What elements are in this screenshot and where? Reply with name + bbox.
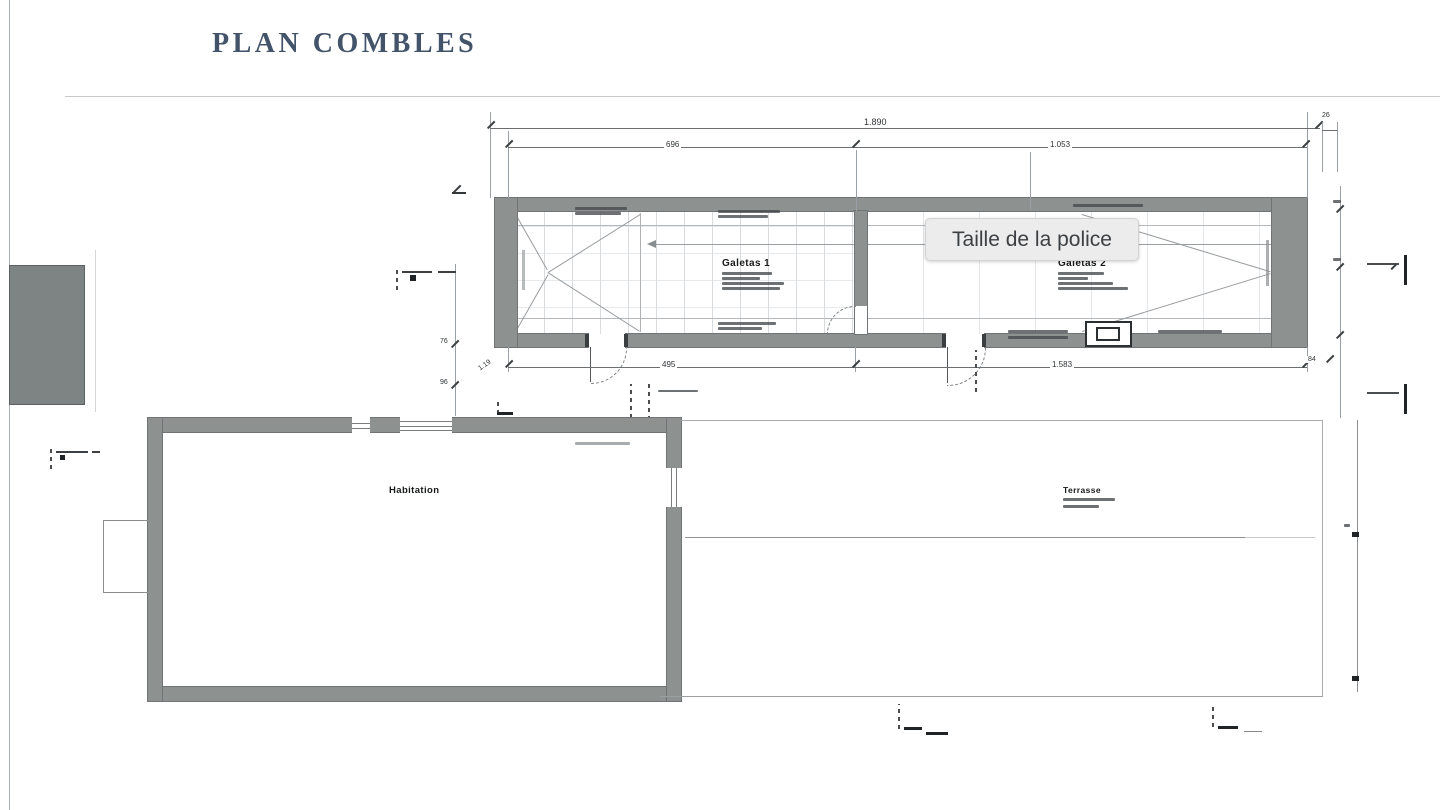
dimension-label-mini: 26 xyxy=(1320,112,1332,119)
terrasse-joint-line xyxy=(1245,537,1315,538)
attic-wall-bottom xyxy=(626,334,945,347)
benchmark-marker xyxy=(56,451,88,453)
dimension-label-slanted: 1.19 xyxy=(476,358,494,374)
illegible-annotation xyxy=(522,250,525,290)
ridge-arrowhead-icon xyxy=(647,240,656,248)
benchmark-marker xyxy=(1390,264,1396,270)
dimension-extension-line xyxy=(1337,122,1338,172)
habitation-wall-bottom xyxy=(148,687,681,701)
benchmark-marker xyxy=(1404,384,1407,414)
plan-combles-page: PLAN COMBLES Gale xyxy=(0,0,1440,810)
habitation-wall-left xyxy=(148,418,162,701)
illegible-annotation xyxy=(1058,287,1128,290)
illegible-annotation xyxy=(722,287,780,290)
illegible-annotation xyxy=(722,282,784,285)
illegible-annotation xyxy=(722,277,760,280)
notch-outline xyxy=(103,520,148,521)
door-post xyxy=(624,334,628,347)
door-swing-arc xyxy=(590,347,627,384)
neighbor-building-fragment xyxy=(10,266,84,404)
illegible-annotation xyxy=(1333,258,1341,261)
knee-wall-line-lower xyxy=(517,318,1272,319)
illegible-annotation xyxy=(1008,330,1068,333)
galetas1-grid-lines xyxy=(517,211,855,334)
dimension-label-mid-left: 495 xyxy=(660,361,677,369)
illegible-annotation xyxy=(1058,282,1113,285)
window-glazing-line xyxy=(352,428,370,429)
benchmark-marker xyxy=(410,275,416,281)
illegible-annotation xyxy=(718,322,776,325)
dimension-extension-line xyxy=(1030,152,1031,210)
illegible-annotation xyxy=(1058,277,1088,280)
window-glazing-line xyxy=(352,423,370,424)
terrasse-edge-bottom xyxy=(660,696,1322,697)
knee-wall-line-upper xyxy=(517,225,1272,226)
plan-title: PLAN COMBLES xyxy=(212,28,477,60)
dimension-label-mid-right: 1.583 xyxy=(1050,361,1074,369)
terrasse-edge-top xyxy=(681,420,1322,421)
door-post xyxy=(942,334,946,347)
illegible-annotation xyxy=(1008,336,1068,339)
dimension-line xyxy=(508,367,1307,368)
terrasse-edge-right xyxy=(1322,420,1323,697)
dimension-tick xyxy=(1352,532,1359,537)
benchmark-marker xyxy=(438,271,456,273)
dimension-label-total: 1.890 xyxy=(862,118,889,127)
dimension-label-left-tick: 96 xyxy=(438,379,450,386)
window-opening xyxy=(666,468,682,507)
dimension-label-right-lower: 84 xyxy=(1306,356,1318,363)
room-label-terrasse: Terrasse xyxy=(1063,486,1101,495)
reference-line xyxy=(648,384,650,420)
window-glazing-line xyxy=(400,430,452,431)
dimension-extension-line xyxy=(855,347,856,372)
benchmark-marker xyxy=(1218,726,1238,729)
benchmark-marker xyxy=(904,727,922,730)
scan-edge-top xyxy=(65,96,1440,97)
illegible-annotation xyxy=(1158,330,1222,333)
illegible-annotation xyxy=(718,327,762,330)
scan-faint-line xyxy=(95,250,96,412)
dimension-label-left-span: 696 xyxy=(664,141,681,149)
benchmark-marker xyxy=(452,192,466,194)
benchmark-marker xyxy=(396,266,398,290)
dimension-extension-line xyxy=(1340,186,1341,418)
benchmark-marker xyxy=(60,455,65,460)
benchmark-marker xyxy=(1404,255,1407,285)
illegible-annotation xyxy=(575,212,621,215)
illegible-annotation xyxy=(1063,498,1115,501)
room-label-galetas1: Galetas 1 xyxy=(722,259,770,269)
dimension-line xyxy=(1322,130,1337,131)
dimension-tick xyxy=(1352,676,1359,681)
dimension-label-left-tick: 76 xyxy=(438,338,450,345)
illegible-annotation xyxy=(1266,240,1269,286)
room-label-habitation: Habitation xyxy=(389,486,439,496)
benchmark-marker xyxy=(92,451,100,453)
attic-wall-right xyxy=(1272,198,1307,347)
terrasse-joint-line xyxy=(685,537,1245,538)
dimension-line xyxy=(508,147,1307,148)
benchmark-marker xyxy=(898,704,900,729)
illegible-annotation xyxy=(722,272,772,275)
window-glazing-line xyxy=(676,468,677,507)
dimension-extension-line xyxy=(1357,420,1358,692)
habitation-wall-right xyxy=(667,418,681,701)
illegible-annotation xyxy=(1073,204,1143,207)
chimney-flue xyxy=(1096,327,1120,341)
door-post xyxy=(585,334,589,347)
benchmark-marker xyxy=(1244,731,1262,732)
illegible-annotation xyxy=(718,215,768,218)
benchmark-marker xyxy=(1212,704,1214,727)
benchmark-marker xyxy=(497,412,513,415)
benchmark-marker xyxy=(50,446,52,469)
benchmark-marker xyxy=(926,732,948,735)
notch-outline xyxy=(103,520,104,592)
dimension-line xyxy=(490,128,1320,129)
window-glazing-line xyxy=(400,426,452,427)
window-glazing-line xyxy=(671,468,672,507)
reference-line xyxy=(975,350,977,392)
font-size-tooltip: Taille de la police xyxy=(925,218,1139,261)
window-glazing-line xyxy=(400,421,452,422)
benchmark-marker xyxy=(402,271,432,273)
dimension-label-right-span: 1.053 xyxy=(1048,141,1072,149)
illegible-annotation xyxy=(1344,524,1350,527)
illegible-annotation xyxy=(575,207,627,210)
dimension-extension-line xyxy=(1307,112,1308,198)
roof-break-line xyxy=(640,213,641,332)
illegible-annotation xyxy=(1058,272,1104,275)
door-post xyxy=(982,334,986,347)
scan-edge-left xyxy=(9,0,10,810)
illegible-annotation xyxy=(1063,505,1099,508)
middle-wall-door-opening xyxy=(855,306,867,334)
illegible-annotation xyxy=(1333,200,1341,203)
illegible-annotation xyxy=(718,210,780,213)
attic-wall-left xyxy=(495,198,517,347)
dimension-tick xyxy=(1326,355,1334,363)
dimension-extension-line xyxy=(856,150,857,211)
reference-line xyxy=(630,384,632,418)
window-opening xyxy=(352,417,370,433)
notch-outline xyxy=(103,592,148,593)
dimension-extension-line xyxy=(508,347,509,372)
illegible-annotation xyxy=(575,442,630,445)
benchmark-marker xyxy=(1367,392,1399,394)
illegible-annotation xyxy=(658,390,698,392)
